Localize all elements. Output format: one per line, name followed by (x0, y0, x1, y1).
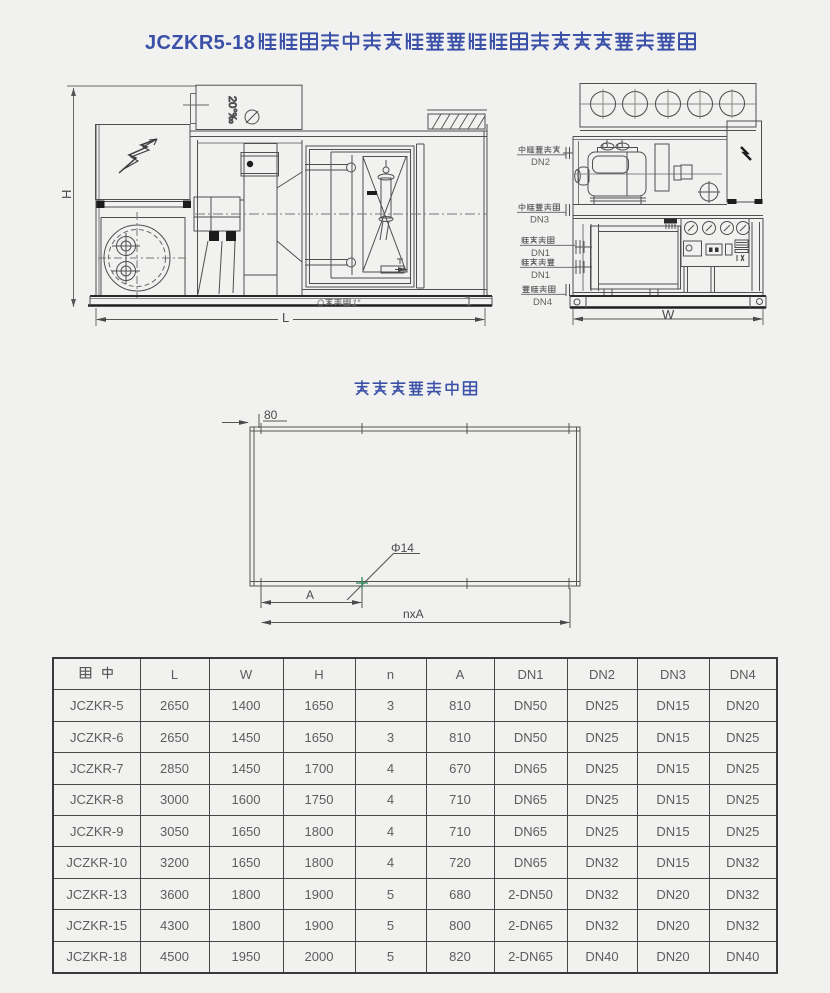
svg-text:L: L (282, 310, 289, 325)
svg-text:JCZKR5-18: JCZKR5-18 (145, 32, 255, 54)
svg-text:DN1: DN1 (531, 270, 550, 281)
svg-text:Φ14: Φ14 (391, 541, 414, 555)
svg-text:1″: 1″ (352, 298, 361, 308)
svg-text:80: 80 (264, 408, 278, 422)
svg-text:W: W (662, 307, 675, 322)
svg-text:H: H (59, 190, 74, 199)
svg-text:DN4: DN4 (533, 297, 552, 308)
svg-text:DN3: DN3 (530, 215, 549, 226)
svg-text:20°‰: 20°‰ (226, 96, 238, 124)
svg-text:A: A (306, 588, 314, 602)
svg-text:DN2: DN2 (531, 157, 550, 168)
svg-text:DN1: DN1 (531, 248, 550, 259)
svg-text:nxA: nxA (403, 607, 424, 621)
svg-text:O: O (317, 298, 324, 308)
